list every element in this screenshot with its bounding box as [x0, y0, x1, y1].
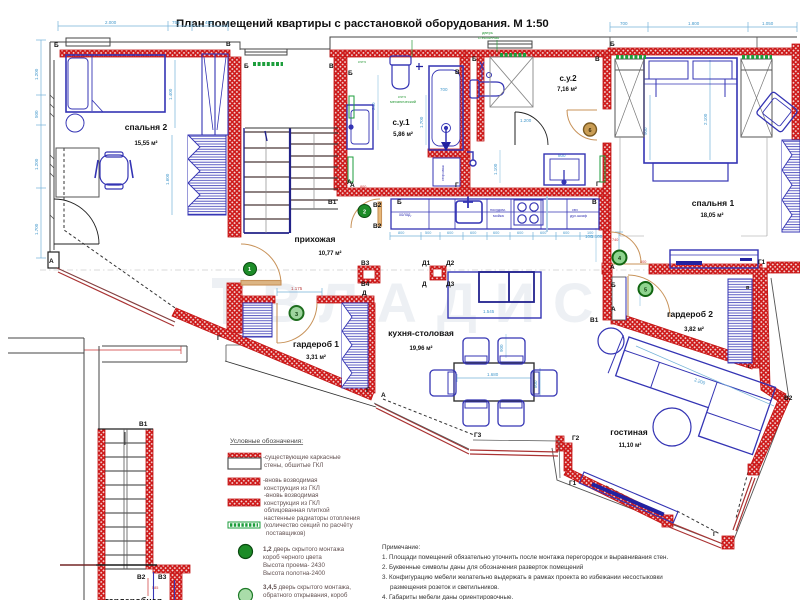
svg-text:короб черного цвета: короб черного цвета — [263, 554, 322, 561]
svg-text:Г: Г — [713, 532, 717, 538]
svg-text:Г3: Г3 — [474, 432, 482, 439]
svg-text:4. Габариты мебели даны ориент: 4. Габариты мебели даны ориентировочные. — [382, 593, 513, 600]
svg-text:Г1: Г1 — [569, 480, 577, 487]
svg-text:Д3: Д3 — [446, 281, 455, 288]
svg-text:В: В — [455, 69, 460, 76]
svg-text:Б: Б — [610, 41, 615, 48]
svg-text:Г: Г — [455, 182, 459, 189]
svg-text:с.у.2: с.у.2 — [559, 74, 577, 83]
svg-text:1.050: 1.050 — [762, 21, 774, 26]
svg-text:2. Буквенные символы даны для: 2. Буквенные символы даны для обозначени… — [382, 563, 584, 571]
svg-text:В1: В1 — [328, 199, 337, 206]
svg-text:-вновь возводимая: -вновь возводимая — [263, 477, 318, 484]
svg-text:В: В — [329, 63, 334, 70]
svg-text:600: 600 — [563, 231, 569, 235]
svg-text:Условные обозначения:: Условные обозначения: — [230, 437, 303, 445]
svg-text:План помещений квартиры с расс: План помещений квартиры с расстановкой о… — [176, 18, 549, 30]
svg-text:15,55 м²: 15,55 м² — [134, 140, 157, 147]
svg-text:облицованная плиткой: облицованная плиткой — [264, 507, 330, 514]
svg-text:Примечание:: Примечание: — [382, 544, 420, 551]
svg-text:мойка: мойка — [493, 214, 505, 218]
svg-text:посудом.: посудом. — [490, 208, 506, 212]
svg-text:600: 600 — [517, 231, 523, 235]
svg-text:1.680: 1.680 — [487, 372, 499, 377]
svg-text:размещения розеток и светильни: размещения розеток и светильников. — [390, 584, 499, 591]
svg-text:поставщиков): поставщиков) — [266, 530, 306, 537]
svg-text:700: 700 — [620, 21, 628, 26]
svg-text:19,96 м²: 19,96 м² — [409, 345, 432, 352]
svg-text:В4: В4 — [361, 281, 370, 288]
svg-text:В: В — [595, 56, 600, 63]
svg-text:Г1: Г1 — [758, 259, 766, 266]
svg-text:В3: В3 — [361, 260, 370, 267]
svg-text:500: 500 — [34, 110, 39, 118]
svg-text:А: А — [611, 306, 616, 313]
svg-text:-существующие каркасные: -существующие каркасные — [263, 454, 341, 461]
svg-text:свч: свч — [572, 208, 578, 212]
svg-text:2.100: 2.100 — [703, 113, 708, 125]
svg-text:1.545: 1.545 — [483, 309, 495, 314]
svg-text:1.400: 1.400 — [168, 88, 173, 100]
svg-text:конструкция из ГКЛ: конструкция из ГКЛ — [264, 500, 320, 507]
svg-text:Г2: Г2 — [572, 435, 580, 442]
svg-text:дух.шкаф: дух.шкаф — [570, 214, 587, 218]
svg-text:Б: Б — [244, 63, 249, 70]
svg-text:1.200: 1.200 — [34, 158, 39, 170]
svg-text:спальня 2: спальня 2 — [125, 122, 168, 132]
svg-text:В1: В1 — [139, 421, 148, 428]
svg-text:Б: Б — [397, 199, 402, 206]
svg-text:стир.маш: стир.маш — [441, 165, 445, 181]
svg-text:3,31 м²: 3,31 м² — [306, 354, 326, 361]
svg-text:900: 900 — [499, 344, 504, 352]
svg-text:Г: Г — [217, 335, 221, 342]
svg-text:1.175: 1.175 — [291, 286, 303, 291]
svg-text:1.100: 1.100 — [591, 234, 603, 239]
svg-text:1: 1 — [248, 267, 251, 273]
svg-text:1,2 дверь скрытого монтажа: 1,2 дверь скрытого монтажа — [263, 546, 345, 553]
svg-text:Б: Б — [54, 42, 59, 49]
svg-text:счтч: счтч — [358, 59, 366, 64]
svg-text:В3: В3 — [158, 574, 167, 581]
svg-text:В2: В2 — [784, 395, 793, 402]
svg-text:Д: Д — [422, 281, 427, 288]
svg-text:Д2: Д2 — [446, 260, 455, 267]
svg-text:2: 2 — [363, 210, 366, 216]
svg-text:А: А — [381, 392, 386, 399]
svg-text:В2: В2 — [137, 574, 146, 581]
svg-text:1.700: 1.700 — [419, 116, 424, 128]
svg-text:В: В — [226, 41, 231, 48]
svg-text:настенные радиаторы отопления: настенные радиаторы отопления — [264, 515, 360, 522]
svg-text:1. Площади помещений обязатель: 1. Площади помещений обязательно уточнит… — [382, 553, 668, 561]
svg-text:В: В — [592, 199, 597, 206]
svg-text:механический: механический — [390, 99, 416, 104]
svg-text:2.000: 2.000 — [105, 20, 117, 25]
svg-text:А: А — [347, 179, 352, 186]
svg-text:Высота полотна-2400: Высота полотна-2400 — [263, 570, 326, 577]
svg-text:холод.: холод. — [399, 212, 412, 217]
svg-text:600: 600 — [540, 231, 546, 235]
svg-text:спальня 1: спальня 1 — [692, 198, 735, 208]
svg-text:обратного открывания, короб: обратного открывания, короб — [263, 592, 348, 599]
svg-text:800: 800 — [398, 231, 404, 235]
svg-text:1.800: 1.800 — [688, 21, 700, 26]
svg-text:3,4,5 дверь скрытого монтажа,: 3,4,5 дверь скрытого монтажа, — [263, 584, 351, 591]
svg-text:600: 600 — [470, 231, 476, 235]
svg-text:гардероб 1: гардероб 1 — [293, 339, 339, 349]
svg-text:450: 450 — [205, 20, 213, 25]
svg-text:3. Конфигурацию мебели желател: 3. Конфигурацию мебели желательно выдерж… — [382, 573, 663, 581]
svg-text:5,86 м²: 5,86 м² — [393, 131, 413, 138]
svg-text:В1: В1 — [590, 317, 599, 324]
svg-text:10,77 м²: 10,77 м² — [318, 250, 341, 257]
svg-text:А: А — [610, 264, 615, 271]
svg-text:Б: Б — [611, 282, 616, 289]
svg-text:Высота проема- 2430: Высота проема- 2430 — [263, 562, 325, 569]
svg-text:-вновь возводимая: -вновь возводимая — [264, 492, 319, 499]
svg-text:600: 600 — [493, 231, 499, 235]
svg-text:Д: Д — [362, 290, 367, 297]
svg-text:(количество секций по расчёту: (количество секций по расчёту — [264, 522, 354, 529]
svg-text:конструкция из ГКЛ: конструкция из ГКЛ — [264, 485, 320, 492]
svg-text:В2: В2 — [373, 223, 382, 230]
svg-text:Б: Б — [348, 70, 353, 77]
svg-text:600: 600 — [447, 231, 453, 235]
svg-text:750: 750 — [172, 20, 180, 25]
svg-text:1.700: 1.700 — [34, 223, 39, 235]
svg-text:В2: В2 — [373, 202, 382, 209]
svg-text:А: А — [49, 258, 54, 265]
svg-text:740: 740 — [612, 238, 618, 242]
svg-text:11,10 м²: 11,10 м² — [619, 442, 642, 449]
svg-text:1.200: 1.200 — [520, 118, 532, 123]
svg-text:Г: Г — [596, 181, 600, 188]
svg-text:7,16 м²: 7,16 м² — [557, 86, 577, 93]
svg-text:100: 100 — [585, 234, 593, 239]
svg-text:стены, обшитые ГКЛ: стены, обшитые ГКЛ — [264, 462, 323, 469]
svg-text:гардеробная: гардеробная — [105, 596, 162, 600]
svg-text:гостиная: гостиная — [610, 427, 647, 437]
svg-text:Б: Б — [472, 56, 477, 63]
svg-text:3: 3 — [295, 312, 298, 318]
svg-text:кухня-столовая: кухня-столовая — [388, 328, 454, 338]
svg-text:500: 500 — [425, 231, 431, 235]
svg-text:Г: Г — [366, 387, 370, 394]
svg-text:прихожая: прихожая — [295, 234, 336, 244]
svg-text:6: 6 — [588, 128, 591, 134]
svg-text:1.200: 1.200 — [34, 68, 39, 80]
svg-text:18,05 м²: 18,05 м² — [700, 212, 723, 219]
svg-text:1.100: 1.100 — [493, 163, 498, 175]
svg-text:Д1: Д1 — [422, 260, 431, 267]
svg-text:700: 700 — [440, 87, 448, 92]
svg-text:гардероб 2: гардероб 2 — [667, 309, 713, 319]
svg-text:стеклянная: стеклянная — [478, 35, 499, 40]
svg-text:3,82 м²: 3,82 м² — [684, 326, 704, 333]
svg-text:1.600: 1.600 — [165, 173, 170, 185]
svg-text:5: 5 — [644, 288, 647, 294]
svg-text:с.у.1: с.у.1 — [392, 118, 410, 127]
